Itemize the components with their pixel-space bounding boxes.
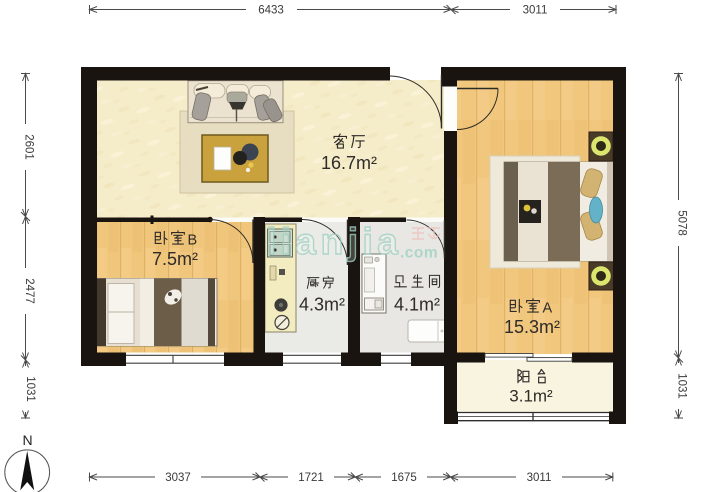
svg-text:1031: 1031	[676, 373, 688, 399]
svg-text:lianjia: lianjia	[266, 221, 402, 262]
svg-text:3.1m²: 3.1m²	[509, 387, 553, 406]
svg-text:15.3m²: 15.3m²	[504, 317, 560, 337]
svg-text:3011: 3011	[523, 5, 548, 17]
svg-text:1721: 1721	[298, 472, 324, 484]
svg-text:.com: .com	[400, 245, 438, 262]
svg-text:A: A	[543, 301, 553, 317]
svg-text:4.3m²: 4.3m²	[299, 295, 345, 315]
svg-text:2477: 2477	[23, 278, 35, 304]
svg-text:2601: 2601	[23, 134, 35, 160]
svg-text:6433: 6433	[258, 5, 284, 17]
svg-text:3011: 3011	[527, 472, 552, 484]
svg-text:1675: 1675	[391, 472, 417, 484]
svg-text:B: B	[188, 233, 198, 249]
svg-text:1031: 1031	[24, 376, 36, 402]
svg-text:N: N	[22, 432, 32, 448]
svg-text:16.7m²: 16.7m²	[321, 153, 377, 173]
svg-text:7.5m²: 7.5m²	[152, 249, 198, 269]
svg-text:3037: 3037	[165, 472, 191, 484]
svg-text:4.1m²: 4.1m²	[394, 295, 440, 315]
svg-text:5078: 5078	[676, 210, 688, 236]
